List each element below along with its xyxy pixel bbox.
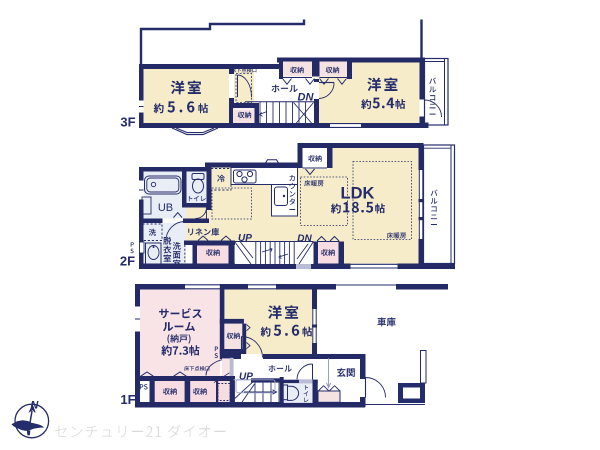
svg-text:UP: UP <box>239 372 253 383</box>
svg-text:DN: DN <box>297 234 312 245</box>
svg-text:DN: DN <box>298 92 315 104</box>
svg-text:LDK: LDK <box>341 185 375 203</box>
svg-text:UP: UP <box>238 233 252 244</box>
svg-text:3F: 3F <box>120 115 135 130</box>
svg-text:1F: 1F <box>120 392 135 407</box>
svg-text:UB: UB <box>158 202 173 214</box>
svg-text:N: N <box>30 400 39 412</box>
svg-text:2F: 2F <box>120 254 135 269</box>
